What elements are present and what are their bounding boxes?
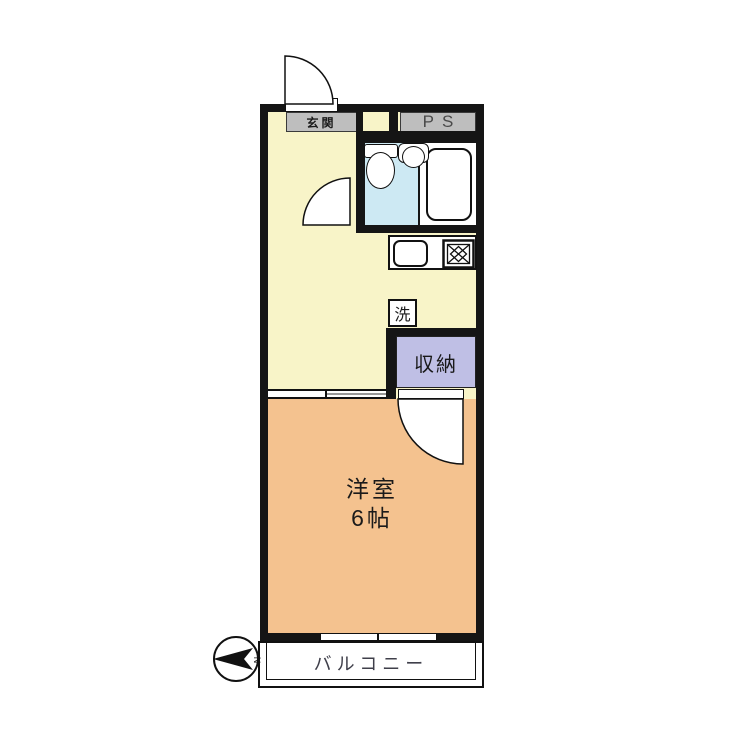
room-label-line1: 洋室: [346, 475, 398, 504]
closet-label-text: 収納: [414, 348, 458, 377]
room-door-icon: [394, 395, 468, 469]
toilet-bowl-icon: [366, 152, 395, 189]
pipe-space-label-text: PS: [423, 112, 462, 132]
balcony-label: バルコニー: [260, 643, 482, 682]
closet-floor: 収納: [396, 336, 476, 388]
sliding-partition-icon: [268, 389, 386, 399]
wall-left: [260, 104, 268, 641]
window-tick: [377, 633, 379, 641]
closet-wall-left: [386, 328, 396, 399]
bathroom-door-icon: [300, 175, 353, 228]
bathroom-wall-top: [356, 131, 484, 143]
partition-rail: [327, 393, 386, 395]
balcony-label-text: バルコニー: [314, 650, 429, 676]
entrance-label-text: 玄関: [306, 114, 336, 131]
sliding-window-icon: [320, 633, 437, 641]
compass-icon: N: [210, 634, 264, 688]
closet-wall-top: [386, 328, 484, 336]
washer-label-text: 洗: [394, 301, 410, 325]
room-label-line2: 6帖: [351, 504, 393, 533]
pipe-space-label: PS: [400, 112, 476, 132]
washer-box: 洗: [388, 299, 417, 327]
compass-north-text: N: [252, 657, 262, 664]
stove-icon: [442, 239, 475, 269]
wash-basin-bowl-icon: [402, 146, 425, 168]
balcony: バルコニー: [258, 641, 484, 688]
kitchen-sink-icon: [393, 240, 428, 267]
entrance-label: 玄関: [286, 112, 357, 132]
bathtub-icon: [426, 148, 472, 221]
wall-right: [476, 104, 484, 641]
entrance-door-icon: [281, 52, 339, 110]
bathroom-wall-bottom: [356, 225, 484, 233]
main-room-label: 洋室 6帖: [272, 468, 472, 540]
floor-plan: 玄関 PS 洗 収納: [0, 0, 740, 740]
